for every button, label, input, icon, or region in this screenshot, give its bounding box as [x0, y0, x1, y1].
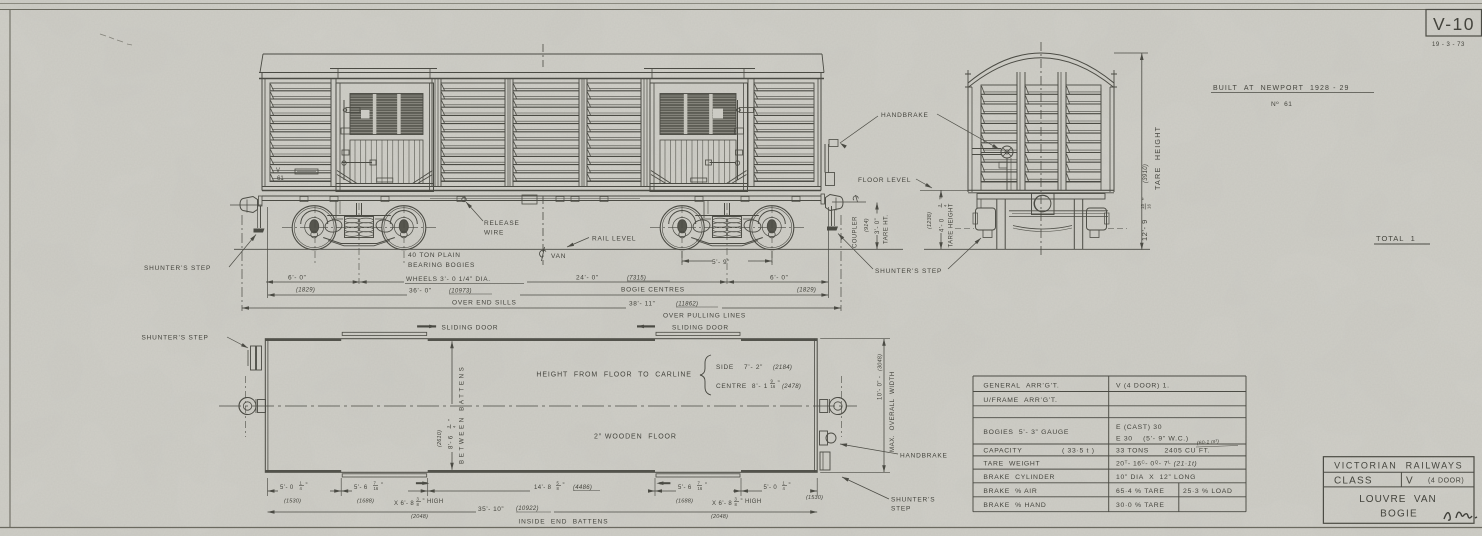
svg-text:(3048): (3048)	[878, 354, 884, 371]
svg-text:(2048): (2048)	[711, 514, 728, 520]
svg-text:(11862): (11862)	[676, 302, 698, 308]
svg-text:”: ”	[705, 483, 708, 489]
svg-text:CENTRE 8’- 1: CENTRE 8’- 1	[716, 383, 768, 390]
svg-text:CAPACITY: CAPACITY	[983, 448, 1022, 455]
svg-text:(10922): (10922)	[516, 506, 539, 512]
svg-text:SHUNTER’S STEP: SHUNTER’S STEP	[142, 335, 209, 342]
svg-text:16: 16	[1147, 204, 1152, 209]
svg-text:”: ”	[789, 483, 792, 489]
svg-text:FLOOR LEVEL: FLOOR LEVEL	[858, 177, 911, 184]
svg-text:SHUNTER’S: SHUNTER’S	[891, 497, 935, 504]
svg-text:(4 DOOR): (4 DOOR)	[1428, 478, 1464, 485]
svg-text:(1530): (1530)	[806, 495, 823, 501]
svg-text:”: ”	[449, 418, 455, 421]
svg-text:VICTORIAN RAILWAYS: VICTORIAN RAILWAYS	[1334, 461, 1463, 471]
svg-text:10’- 0” -: 10’- 0” -	[878, 376, 884, 400]
svg-text:BOGIE: BOGIE	[1380, 509, 1418, 520]
svg-text:RAIL LEVEL: RAIL LEVEL	[592, 236, 636, 243]
svg-text:6’- 0”: 6’- 0”	[288, 275, 306, 282]
svg-text:E 30 (5’- 9” W.C.): E 30 (5’- 9” W.C.)	[1116, 436, 1189, 443]
svg-text:GENERAL ARR’G’T.: GENERAL ARR’G’T.	[983, 383, 1059, 390]
svg-text:12’- 9: 12’- 9	[1140, 219, 1149, 241]
svg-text:(1688): (1688)	[357, 499, 374, 505]
svg-text:(2478): (2478)	[782, 384, 801, 390]
svg-text:BOGIE CENTRES: BOGIE CENTRES	[621, 287, 685, 294]
svg-text:MAX. OVERALL WIDTH: MAX. OVERALL WIDTH	[889, 371, 896, 452]
svg-text:SHUNTER’S STEP: SHUNTER’S STEP	[875, 268, 942, 275]
svg-text:CLASS: CLASS	[1334, 476, 1373, 487]
svg-text:V-10: V-10	[1433, 14, 1475, 34]
svg-text:TARE HEIGHT: TARE HEIGHT	[949, 203, 955, 247]
svg-text:15: 15	[1140, 204, 1145, 209]
svg-text:OVER END SILLS: OVER END SILLS	[452, 300, 517, 307]
svg-text:Nº 61: Nº 61	[1271, 101, 1293, 108]
svg-text:36’- 0”: 36’- 0”	[409, 288, 432, 295]
svg-text:” HIGH: ” HIGH	[423, 499, 444, 505]
svg-text:”: ”	[940, 197, 946, 200]
svg-text:2” WOODEN FLOOR: 2” WOODEN FLOOR	[594, 434, 677, 441]
svg-text:”: ”	[381, 483, 384, 489]
svg-text:BOGIES 5’- 3” GAUGE: BOGIES 5’- 3” GAUGE	[983, 429, 1069, 436]
svg-text:(1238): (1238)	[927, 212, 933, 229]
svg-text:33 TONS 2405 CU FT.: 33 TONS 2405 CU FT.	[1116, 448, 1210, 455]
svg-text:(914): (914)	[864, 218, 870, 232]
svg-text:VAN: VAN	[551, 253, 566, 260]
svg-text:61: 61	[277, 176, 284, 182]
svg-text:35’- 10”: 35’- 10”	[478, 506, 504, 513]
svg-text:HANDBRAKE: HANDBRAKE	[900, 453, 948, 460]
svg-text:65·4 % TARE: 65·4 % TARE	[1116, 488, 1165, 495]
svg-text:”: ”	[778, 380, 781, 387]
svg-text:BRAKE % HAND: BRAKE % HAND	[983, 502, 1046, 509]
svg-text:(1829): (1829)	[296, 288, 315, 294]
svg-text:5’- 0: 5’- 0	[764, 485, 778, 491]
svg-text:U/FRAME ARR’G’T.: U/FRAME ARR’G’T.	[983, 397, 1057, 404]
svg-text:24’- 0”: 24’- 0”	[576, 275, 599, 282]
svg-text:X 6’- 8: X 6’- 8	[712, 501, 732, 507]
svg-text:10” DIA X 12” LONG: 10” DIA X 12” LONG	[1116, 474, 1196, 481]
svg-text:LOUVRE VAN: LOUVRE VAN	[1359, 494, 1437, 505]
svg-text:HEIGHT FROM FLOOR TO CARLI: HEIGHT FROM FLOOR TO CARLINE	[536, 372, 691, 379]
svg-text:38’- 11”: 38’- 11”	[629, 301, 655, 308]
svg-text:BUILT AT NEWPORT 1928 - 29: BUILT AT NEWPORT 1928 - 29	[1213, 85, 1350, 92]
svg-text:( 33·5 t ): ( 33·5 t )	[1062, 448, 1095, 455]
svg-text:(4486): (4486)	[573, 485, 592, 491]
svg-text:3’- 0”: 3’- 0”	[875, 218, 881, 234]
svg-text:(1688): (1688)	[676, 499, 693, 505]
svg-text:”: ”	[306, 483, 309, 489]
svg-text:SIDE 7’- 2”: SIDE 7’- 2”	[716, 364, 763, 371]
svg-text:HANDBRAKE: HANDBRAKE	[881, 112, 929, 119]
svg-text:”: ”	[1140, 197, 1149, 200]
svg-text:14’- 8: 14’- 8	[534, 485, 552, 491]
svg-text:RELEASE: RELEASE	[484, 220, 520, 227]
svg-text:25·3 % LOAD: 25·3 % LOAD	[1183, 488, 1233, 495]
svg-text:(2048): (2048)	[411, 514, 428, 520]
svg-text:5’- 9”: 5’- 9”	[712, 259, 730, 266]
svg-text:40 TON PLAIN: 40 TON PLAIN	[408, 252, 461, 259]
svg-text:BRAKE CYLINDER: BRAKE CYLINDER	[983, 474, 1055, 481]
svg-text:”: ”	[563, 483, 566, 489]
svg-text:5’- 6: 5’- 6	[354, 485, 368, 491]
svg-text:BETWEEN BATTENS: BETWEEN BATTENS	[459, 365, 466, 464]
svg-text:30·0 % TARE: 30·0 % TARE	[1116, 502, 1165, 509]
svg-text:(3910): (3910)	[1143, 164, 1149, 183]
svg-text:OVER PULLING LINES: OVER PULLING LINES	[663, 313, 746, 320]
svg-text:6’- 0”: 6’- 0”	[770, 275, 788, 282]
svg-text:X 6’- 8: X 6’- 8	[394, 501, 414, 507]
svg-text:E (CAST) 30: E (CAST) 30	[1116, 424, 1162, 431]
svg-text:19 - 3 - 73: 19 - 3 - 73	[1432, 42, 1465, 48]
svg-text:TOTAL 1: TOTAL 1	[1376, 234, 1416, 243]
svg-text:” HIGH: ” HIGH	[741, 499, 762, 505]
svg-text:8’- 6: 8’- 6	[449, 435, 455, 449]
svg-text:5’- 6: 5’- 6	[678, 485, 692, 491]
svg-text:4’- 0: 4’- 0	[940, 218, 946, 232]
svg-text:(1530): (1530)	[284, 499, 301, 505]
svg-text:SHUNTER’S STEP: SHUNTER’S STEP	[144, 265, 211, 272]
svg-text:V: V	[1406, 476, 1413, 487]
svg-text:COUPLER: COUPLER	[853, 216, 859, 248]
svg-text:TARE HEIGHT: TARE HEIGHT	[1153, 126, 1162, 190]
svg-text:16: 16	[771, 384, 776, 389]
svg-text:BEARING BOGIES: BEARING BOGIES	[408, 262, 475, 269]
svg-text:SLIDING DOOR: SLIDING DOOR	[442, 325, 499, 332]
svg-text:16: 16	[374, 486, 379, 491]
svg-text:(2610): (2610)	[437, 430, 443, 447]
svg-text:16: 16	[698, 486, 703, 491]
svg-text:V (4 DOOR) 1.: V (4 DOOR) 1.	[1116, 383, 1170, 390]
svg-text:TARE HT.: TARE HT.	[884, 215, 890, 244]
svg-text:(7315): (7315)	[627, 276, 646, 282]
svg-text:WIRE: WIRE	[484, 230, 504, 237]
svg-text:STEP: STEP	[891, 506, 911, 513]
svg-text:INSIDE END BATTENS: INSIDE END BATTENS	[518, 519, 608, 526]
svg-text:5’- 0: 5’- 0	[280, 485, 294, 491]
svg-text:V: V	[276, 168, 280, 174]
svg-text:WHEELS 3’- 0 1/4” DIA.: WHEELS 3’- 0 1/4” DIA.	[406, 276, 491, 283]
svg-text:SLIDING DOOR: SLIDING DOOR	[672, 325, 729, 332]
svg-text:(10973): (10973)	[449, 289, 472, 295]
svg-text:(1829): (1829)	[797, 288, 816, 294]
svg-text:TARE WEIGHT: TARE WEIGHT	[983, 461, 1040, 468]
svg-text:BRAKE % AIR: BRAKE % AIR	[983, 488, 1037, 495]
svg-text:(2184): (2184)	[773, 365, 792, 371]
